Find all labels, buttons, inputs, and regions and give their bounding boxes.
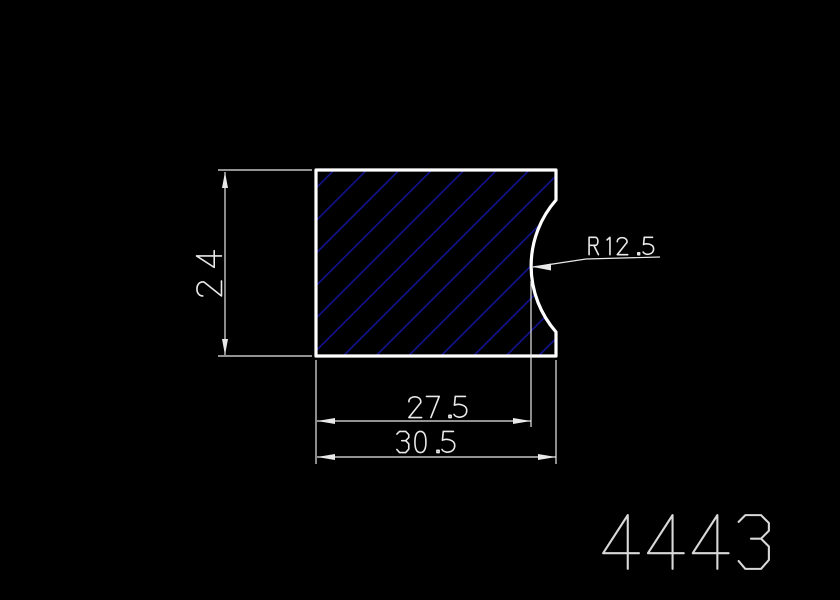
cad-canvas [0, 0, 840, 600]
section-shape [316, 170, 556, 356]
cad-viewport [0, 0, 840, 600]
section-hatch [316, 170, 556, 356]
